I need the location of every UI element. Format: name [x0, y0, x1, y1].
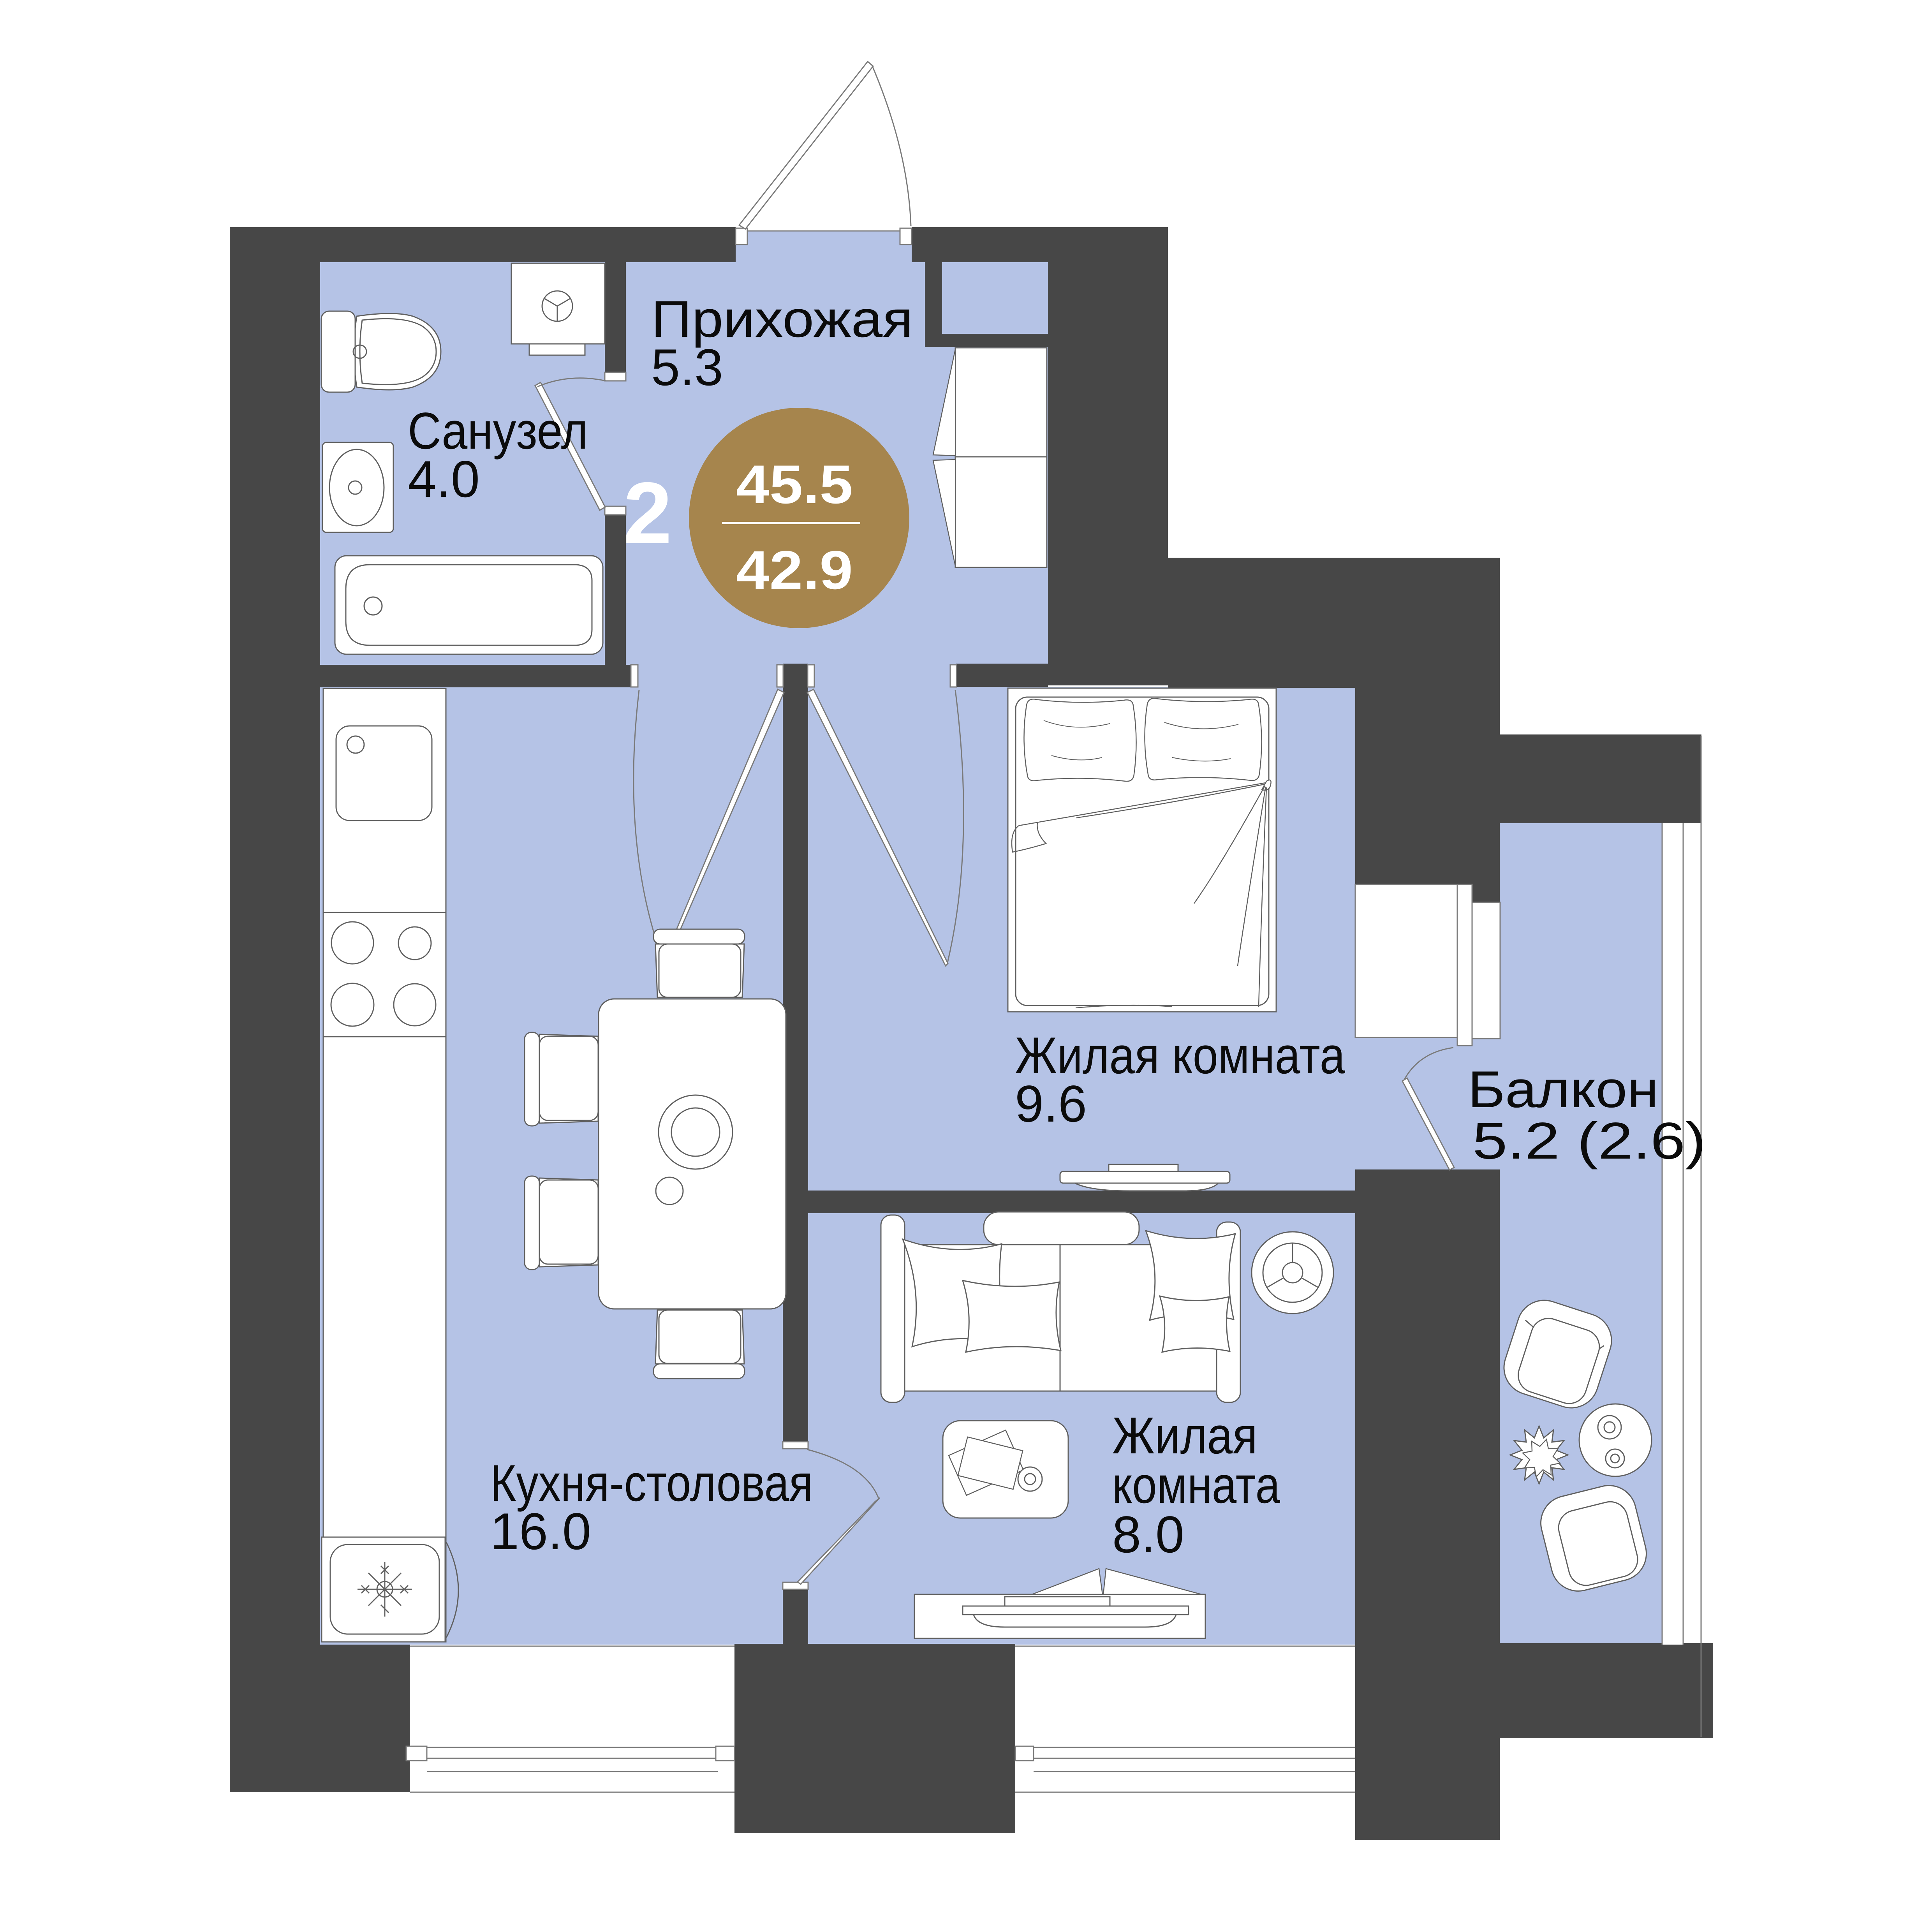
svg-text:8.0: 8.0	[1112, 1506, 1184, 1564]
svg-text:2: 2	[623, 464, 672, 562]
svg-text:9.6: 9.6	[1015, 1075, 1087, 1133]
svg-text:4.0: 4.0	[408, 451, 480, 508]
svg-text:Жилая: Жилая	[1112, 1407, 1257, 1465]
svg-text:42.9: 42.9	[736, 539, 853, 601]
svg-text:5.2 (2.6): 5.2 (2.6)	[1472, 1112, 1706, 1170]
svg-text:Балкон: Балкон	[1468, 1061, 1659, 1118]
svg-text:комната: комната	[1112, 1456, 1280, 1514]
svg-text:45.5: 45.5	[736, 454, 853, 515]
svg-text:16.0: 16.0	[490, 1503, 591, 1560]
svg-text:5.3: 5.3	[651, 339, 723, 396]
